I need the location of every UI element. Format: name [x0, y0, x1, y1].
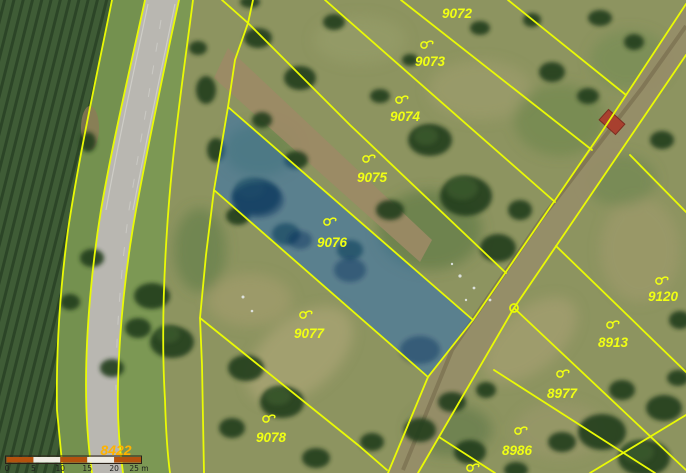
scale-tick: 10 [56, 464, 66, 473]
parcel-number-text: 9075 [357, 170, 388, 185]
scale-bar-segment [60, 457, 87, 463]
scale-bar-segment [7, 457, 34, 463]
parcel-number-text: 9074 [390, 109, 421, 124]
cadastral-map-viewport[interactable]: 9072 9073 9074 9075 9076 9077 9078 9120 [0, 0, 686, 473]
parcel-number-text: 9120 [648, 289, 679, 304]
scale-tick: 15 [82, 464, 92, 473]
scale-tick: 20 [109, 464, 119, 473]
scale-bar-segment [33, 457, 60, 463]
cadastral-map-canvas[interactable]: 9072 9073 9074 9075 9076 9077 9078 9120 [0, 0, 686, 473]
parcel-label-9072[interactable]: 9072 [442, 6, 473, 21]
parcel-number-text: 8913 [598, 335, 629, 350]
parcel-number-text: 8977 [547, 386, 579, 401]
scale-bar-segment [87, 457, 114, 463]
parcel-number-text: 9078 [256, 430, 287, 445]
parcel-number-text: 9072 [442, 6, 473, 21]
scale-tick: 25 m [129, 464, 148, 473]
parcel-number-text: 9076 [317, 235, 348, 250]
scale-bar-segment [114, 457, 141, 463]
parcel-number-text: 9073 [415, 54, 446, 69]
scale-tick: 0 [5, 464, 10, 473]
scale-tick: 5 [31, 464, 36, 473]
parcel-number-text: 9077 [294, 326, 326, 341]
parcel-number-text: 8986 [502, 443, 533, 458]
